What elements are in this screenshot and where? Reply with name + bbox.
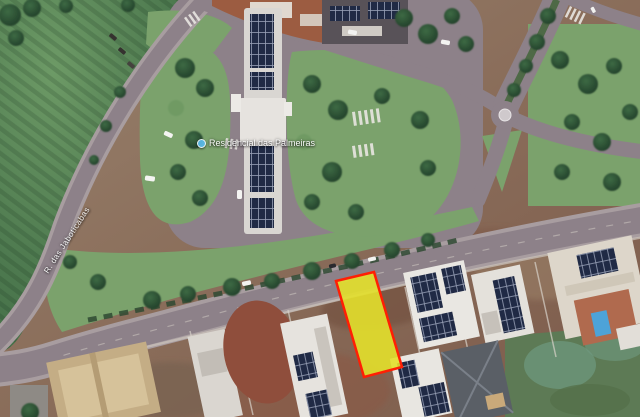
satellite-imagery	[0, 0, 640, 417]
satellite-map-view[interactable]: R. das Jaboticabas Residencial das Palme…	[0, 0, 640, 417]
poi-label-text: Residencial das Palmeiras	[209, 138, 315, 148]
poi-label[interactable]: Residencial das Palmeiras	[197, 138, 315, 148]
poi-pin-icon	[197, 139, 206, 148]
